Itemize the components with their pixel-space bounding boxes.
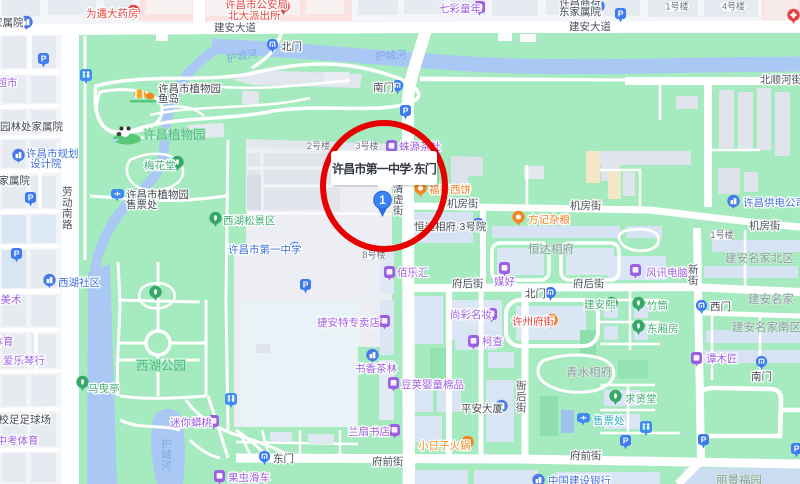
svg-text:售票处: 售票处 (126, 198, 158, 211)
svg-text:马曳亭: 马曳亭 (88, 382, 120, 395)
svg-text:丽景福园: 丽景福园 (716, 473, 762, 484)
svg-text:家属院: 家属院 (0, 16, 24, 29)
svg-text:机房街: 机房街 (749, 219, 781, 232)
svg-text:护城河: 护城河 (375, 48, 408, 63)
svg-text:3号楼: 3号楼 (355, 140, 378, 151)
svg-text:中国建设银行: 中国建设银行 (548, 474, 611, 484)
svg-text:机房街: 机房街 (570, 199, 602, 212)
svg-text:园林处家属院: 园林处家属院 (0, 120, 63, 133)
svg-text:方记杂粮: 方记杂粮 (528, 213, 570, 226)
svg-text:北门: 北门 (281, 40, 302, 53)
svg-text:许昌市第一中学·东门: 许昌市第一中学·东门 (332, 161, 437, 176)
svg-text:佰乐汇: 佰乐汇 (397, 266, 429, 279)
svg-text:豆荚婴童棉品: 豆荚婴童棉品 (401, 378, 464, 391)
svg-text:小日子火锅: 小日子火锅 (418, 440, 471, 452)
svg-text:恒达相府: 恒达相府 (528, 242, 574, 256)
svg-text:兰扇书店: 兰扇书店 (348, 425, 390, 438)
svg-text:尚彩名妆: 尚彩名妆 (450, 308, 492, 321)
svg-text:建安名家: 建安名家 (748, 292, 794, 306)
svg-text:东家属院: 东家属院 (559, 5, 601, 18)
svg-text:谭木匠: 谭木匠 (706, 353, 738, 365)
svg-text:护城河: 护城河 (161, 437, 172, 472)
svg-text:求贤堂: 求贤堂 (625, 393, 657, 405)
svg-text:西湖社区: 西湖社区 (58, 276, 100, 289)
svg-text:清虚街: 清虚街 (393, 182, 404, 217)
svg-text:捷安特专卖店: 捷安特专卖店 (317, 316, 380, 329)
svg-text:劳动南路: 劳动南路 (62, 185, 73, 231)
svg-text:乐美术: 乐美术 (0, 293, 22, 306)
svg-text:府后街: 府后街 (452, 277, 484, 290)
svg-text:南门: 南门 (373, 81, 394, 94)
svg-text:新街: 新街 (688, 263, 699, 287)
svg-text:北大派出所: 北大派出所 (228, 9, 281, 22)
svg-text:许昌植物园: 许昌植物园 (143, 127, 206, 142)
svg-text:东门: 东门 (273, 452, 294, 465)
svg-text:媒好: 媒好 (494, 275, 515, 288)
svg-text:1号楼: 1号楼 (710, 229, 733, 240)
svg-text:西湖松景区: 西湖松景区 (223, 214, 276, 227)
svg-text:东厢房: 东厢房 (647, 322, 679, 335)
svg-text:青水相府: 青水相府 (566, 365, 612, 379)
svg-text:建安名家南区: 建安名家南区 (732, 320, 800, 334)
svg-text:西湖公园: 西湖公园 (136, 358, 186, 373)
svg-text:果虫滑车: 果虫滑车 (228, 471, 270, 484)
svg-text:府后街: 府后街 (573, 277, 605, 290)
svg-text:汇超市: 汇超市 (0, 76, 18, 89)
svg-text:售票处: 售票处 (593, 414, 625, 427)
svg-text:鱼岛: 鱼岛 (158, 92, 179, 105)
svg-text:竹筒: 竹筒 (647, 299, 668, 312)
svg-text:西门: 西门 (710, 300, 731, 313)
svg-text:南门: 南门 (751, 370, 772, 383)
svg-text:王中考体育: 王中考体育 (0, 434, 39, 447)
svg-text:风讯电脑: 风讯电脑 (646, 266, 688, 279)
svg-text:为遇大药房: 为遇大药房 (86, 7, 139, 20)
svg-text:设计院: 设计院 (30, 157, 62, 170)
svg-text:1: 1 (379, 195, 386, 207)
svg-text:建安大道: 建安大道 (214, 21, 256, 34)
svg-text:府前街: 府前街 (570, 449, 602, 462)
svg-text:梅花堂: 梅花堂 (144, 159, 176, 172)
svg-text:许家属院: 许家属院 (0, 174, 30, 187)
svg-text:体校足足球场: 体校足足球场 (0, 413, 51, 426)
svg-text:府前街: 府前街 (372, 455, 404, 468)
svg-text:4号楼: 4号楼 (722, 1, 745, 12)
svg-text:北门: 北门 (525, 287, 546, 300)
svg-text:爱乐琴行: 爱乐琴行 (3, 354, 45, 367)
svg-text:2号楼: 2号楼 (307, 140, 330, 151)
svg-text:平安大厦: 平安大厦 (461, 402, 503, 415)
svg-text:迷你蟒桃: 迷你蟒桃 (170, 416, 212, 429)
svg-text:建安名家北区: 建安名家北区 (725, 251, 794, 265)
svg-text:七彩童年: 七彩童年 (439, 2, 481, 15)
svg-text:建安大道: 建安大道 (569, 20, 611, 33)
svg-text:1号楼: 1号楼 (665, 1, 688, 12)
svg-text:许昌供电公司: 许昌供电公司 (743, 196, 800, 209)
svg-text:机房街: 机房街 (447, 197, 479, 210)
svg-text:许州府街: 许州府街 (512, 315, 554, 328)
svg-text:火体育: 火体育 (0, 335, 14, 348)
svg-text:柯查: 柯查 (482, 335, 503, 348)
svg-text:衙后街: 衙后街 (516, 379, 527, 414)
svg-text:北顺河街: 北顺河街 (760, 73, 800, 86)
svg-text:许昌市第一中学: 许昌市第一中学 (228, 243, 302, 256)
svg-text:书香茶林: 书香茶林 (355, 362, 397, 375)
svg-text:建安熙: 建安熙 (584, 298, 616, 311)
